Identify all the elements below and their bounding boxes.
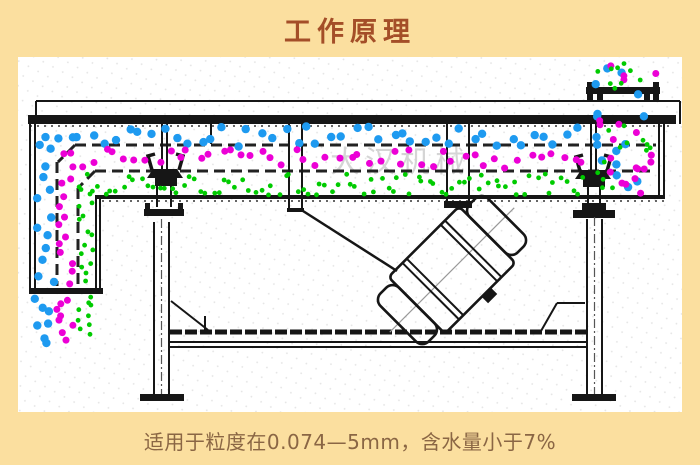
discharge-outlet-bar — [29, 288, 103, 294]
diagram-canvas: 大汉机械 — [0, 0, 700, 465]
page-caption: 适用于粒度在0.074—5mm，含水量小于7% — [0, 426, 700, 455]
left-foot-plate — [140, 394, 184, 401]
drawing-area — [18, 57, 682, 412]
right-foot-plate — [572, 394, 616, 401]
